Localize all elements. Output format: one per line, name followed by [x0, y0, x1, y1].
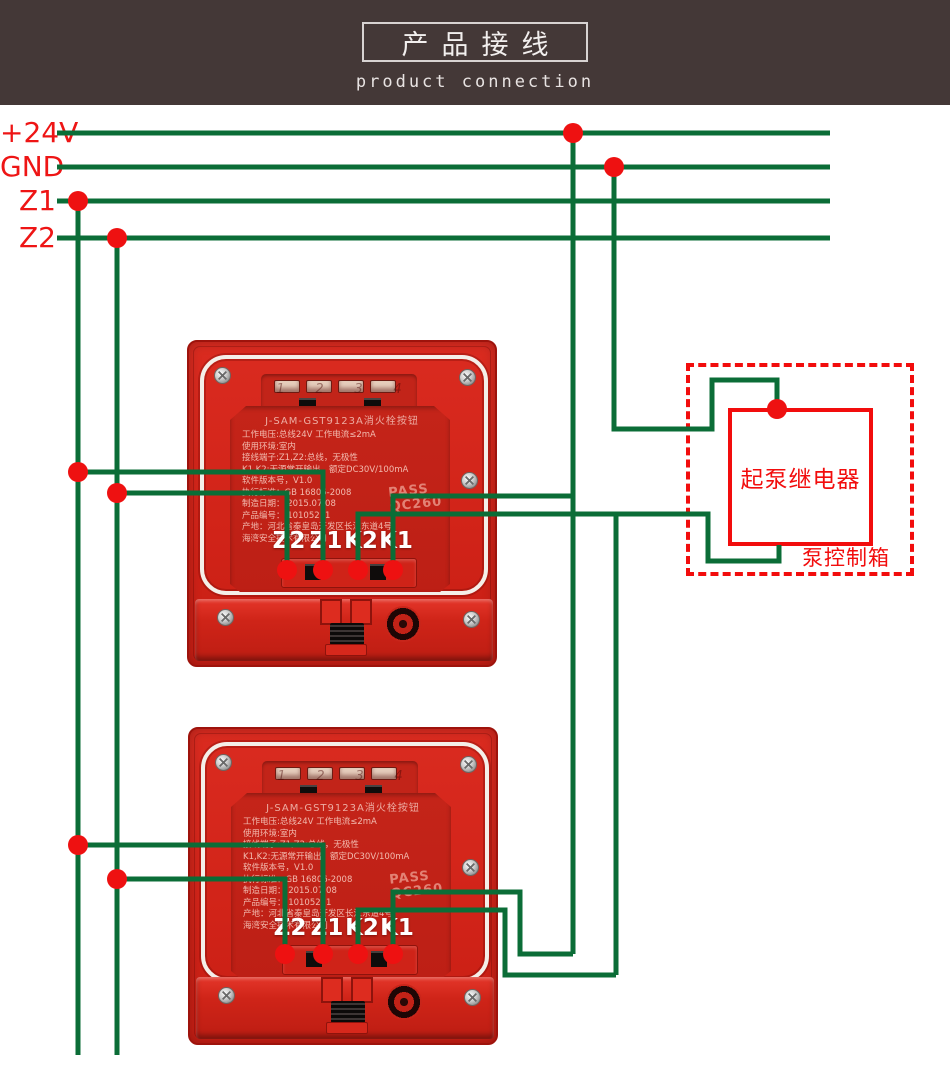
clamp-post: [320, 599, 342, 625]
bus-label-gnd: GND: [0, 153, 56, 181]
terminal-clamp: [370, 564, 386, 580]
slot-numbers: 1 2 3 4: [262, 769, 418, 784]
fire-button-device-2: 1 2 3 4 J-SAM-GST9123A消火栓按钮 工作电压:总线24V 工…: [188, 727, 498, 1045]
pass-stamp: PASS QC260: [388, 481, 443, 514]
pump-start-relay: 起泵继电器: [728, 408, 873, 546]
junction-dot: [563, 123, 583, 143]
screw: [462, 859, 479, 876]
terminal-clamp: [306, 951, 322, 967]
bus-label-z1: Z1: [0, 187, 56, 215]
mounting-strip: [196, 977, 494, 1039]
pass-stamp: PASS QC260: [389, 868, 444, 901]
terminal-label-k1: K1: [379, 528, 413, 554]
terminal-label-k2: K2: [345, 915, 379, 941]
bus-label-z2: Z2: [0, 224, 56, 252]
terminal-label-k1: K1: [380, 915, 414, 941]
clamp-post: [321, 977, 343, 1003]
bus-label-24v: +24V: [0, 119, 56, 147]
screw: [461, 472, 478, 489]
terminal-clamp: [371, 951, 387, 967]
screw: [464, 989, 481, 1006]
junction-dot: [68, 191, 88, 211]
screw: [463, 611, 480, 628]
junction-dot: [68, 835, 88, 855]
label-text: J-SAM-GST9123A消火栓按钮 工作电压:总线24V 工作电流≤2mA …: [242, 412, 442, 545]
terminal-label-k2: K2: [344, 528, 378, 554]
mounting-hole: [385, 606, 421, 642]
relay-label: 起泵继电器: [741, 460, 861, 494]
screw: [214, 367, 231, 384]
screw: [215, 754, 232, 771]
screw: [217, 609, 234, 626]
clamp-post: [350, 599, 372, 625]
junction-dot: [107, 869, 127, 889]
terminal-label-z1: Z1: [310, 528, 343, 554]
model-number: J-SAM-GST9123A消火栓按钮: [242, 412, 442, 427]
clamp-tab: [326, 1022, 368, 1034]
mounting-hole: [386, 984, 422, 1020]
junction-dot: [68, 462, 88, 482]
model-number: J-SAM-GST9123A消火栓按钮: [243, 799, 443, 814]
junction-dot: [107, 228, 127, 248]
screw: [459, 369, 476, 386]
mounting-strip: [195, 599, 493, 661]
label-text: J-SAM-GST9123A消火栓按钮 工作电压:总线24V 工作电流≤2mA …: [243, 799, 443, 932]
terminal-labels: Z2 Z1 K2 K1: [189, 528, 499, 554]
terminal-label-z2: Z2: [274, 915, 307, 941]
junction-dot: [604, 157, 624, 177]
header-bar: 产品接线 product connection: [0, 0, 950, 105]
page-title-box: 产品接线: [362, 22, 588, 62]
pump-control-box: 起泵继电器 泵控制箱: [686, 363, 914, 576]
page-subtitle: product connection: [0, 72, 950, 92]
product-connection-diagram: 产品接线 product connection +24V GND Z1 Z2 1…: [0, 0, 950, 1069]
spring-clip: [330, 623, 364, 645]
clamp-tab: [325, 644, 367, 656]
spring-clip: [331, 1001, 365, 1023]
terminal-clamp: [305, 564, 321, 580]
fire-button-device-1: 1 2 3 4 J-SAM-GST9123A消火栓按钮 工作电压:总线24V 工…: [187, 340, 497, 667]
junction-dot: [107, 483, 127, 503]
pump-box-label: 泵控制箱: [802, 542, 890, 572]
terminal-label-z1: Z1: [311, 915, 344, 941]
clamp-post: [351, 977, 373, 1003]
page-title: 产品接线: [389, 23, 562, 62]
terminal-block: [282, 945, 418, 975]
terminal-block: [281, 558, 417, 588]
slot-numbers: 1 2 3 4: [261, 382, 417, 397]
screw: [460, 756, 477, 773]
terminal-labels: Z2 Z1 K2 K1: [190, 915, 500, 941]
terminal-label-z2: Z2: [273, 528, 306, 554]
screw: [218, 987, 235, 1004]
